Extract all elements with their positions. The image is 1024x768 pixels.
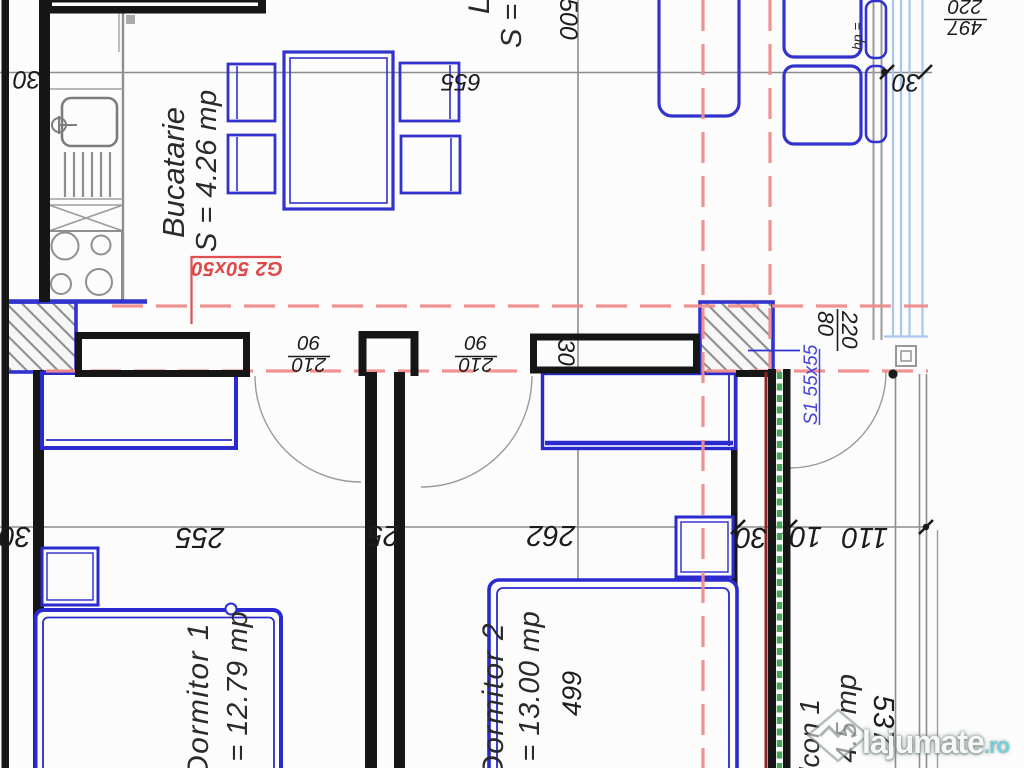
svg-text:500: 500 — [554, 0, 582, 40]
svg-text:220: 220 — [947, 0, 983, 18]
svg-text:220: 220 — [837, 310, 862, 349]
svg-text:25: 25 — [366, 519, 400, 551]
svg-text:30: 30 — [0, 520, 31, 552]
svg-text:Dormitor 1: Dormitor 1 — [182, 622, 215, 768]
svg-text:Dormitor 2: Dormitor 2 — [477, 622, 510, 768]
svg-text:110: 110 — [842, 521, 888, 553]
svg-text:655: 655 — [440, 68, 481, 95]
svg-text:255: 255 — [175, 521, 225, 553]
svg-text:S = 4.26 mp: S = 4.26 mp — [191, 89, 223, 252]
svg-text:G2 50x50: G2 50x50 — [191, 257, 283, 279]
svg-text:30: 30 — [735, 521, 767, 553]
svg-text:90: 90 — [297, 331, 320, 354]
svg-text:S = 12.79 mp: S = 12.79 mp — [222, 611, 254, 768]
svg-text:30: 30 — [892, 68, 920, 96]
svg-text:S = 26.45 mp: S = 26.45 mp — [496, 0, 528, 48]
svg-text:262: 262 — [527, 519, 576, 551]
svg-text:80: 80 — [813, 311, 838, 337]
svg-text:90: 90 — [464, 331, 487, 354]
svg-text:Living: Living — [463, 0, 496, 14]
svg-text:499: 499 — [557, 671, 587, 716]
svg-text:Bucatarie: Bucatarie — [156, 107, 191, 238]
svg-text:hp =: hp = — [849, 22, 865, 50]
svg-text:S = 13.00 mp: S = 13.00 mp — [514, 611, 546, 768]
svg-text:30: 30 — [13, 65, 41, 93]
svg-text:10: 10 — [790, 520, 822, 552]
svg-text:30: 30 — [552, 339, 579, 366]
